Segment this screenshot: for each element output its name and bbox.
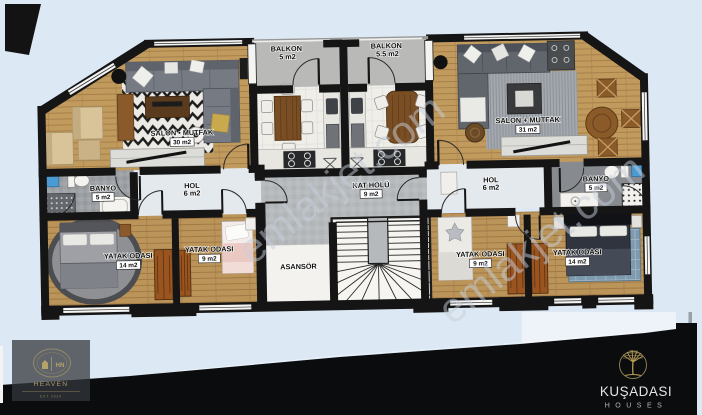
svg-text:EST 2020: EST 2020 (40, 395, 62, 399)
svg-text:5 m2: 5 m2 (96, 194, 111, 201)
svg-text:14 m2: 14 m2 (119, 262, 138, 269)
svg-text:YATAK ODASI: YATAK ODASI (104, 251, 153, 261)
svg-text:ASANSÖR: ASANSÖR (280, 262, 317, 272)
svg-text:30 m2: 30 m2 (173, 139, 192, 146)
svg-text:HOUSES: HOUSES (605, 403, 668, 410)
svg-text:14 m2: 14 m2 (568, 258, 587, 265)
svg-text:SALON + MUTFAK: SALON + MUTFAK (496, 115, 561, 125)
svg-text:KUŞADASI: KUŞADASI (600, 384, 672, 399)
svg-text:9 m2: 9 m2 (202, 256, 217, 263)
svg-text:HN: HN (56, 362, 65, 369)
svg-text:5 m2: 5 m2 (279, 52, 296, 61)
svg-text:SALON • MUTFAK: SALON • MUTFAK (151, 128, 214, 138)
svg-text:BANYO: BANYO (90, 183, 117, 193)
svg-text:6 m2: 6 m2 (483, 183, 500, 192)
svg-text:YATAK ODASI: YATAK ODASI (185, 244, 234, 254)
svg-text:HEAVEN: HEAVEN (34, 381, 69, 388)
svg-text:5.5 m2: 5.5 m2 (376, 49, 399, 58)
svg-text:31 m2: 31 m2 (519, 126, 538, 133)
svg-text:6 m2: 6 m2 (184, 188, 201, 197)
svg-text:9 m2: 9 m2 (364, 191, 379, 198)
